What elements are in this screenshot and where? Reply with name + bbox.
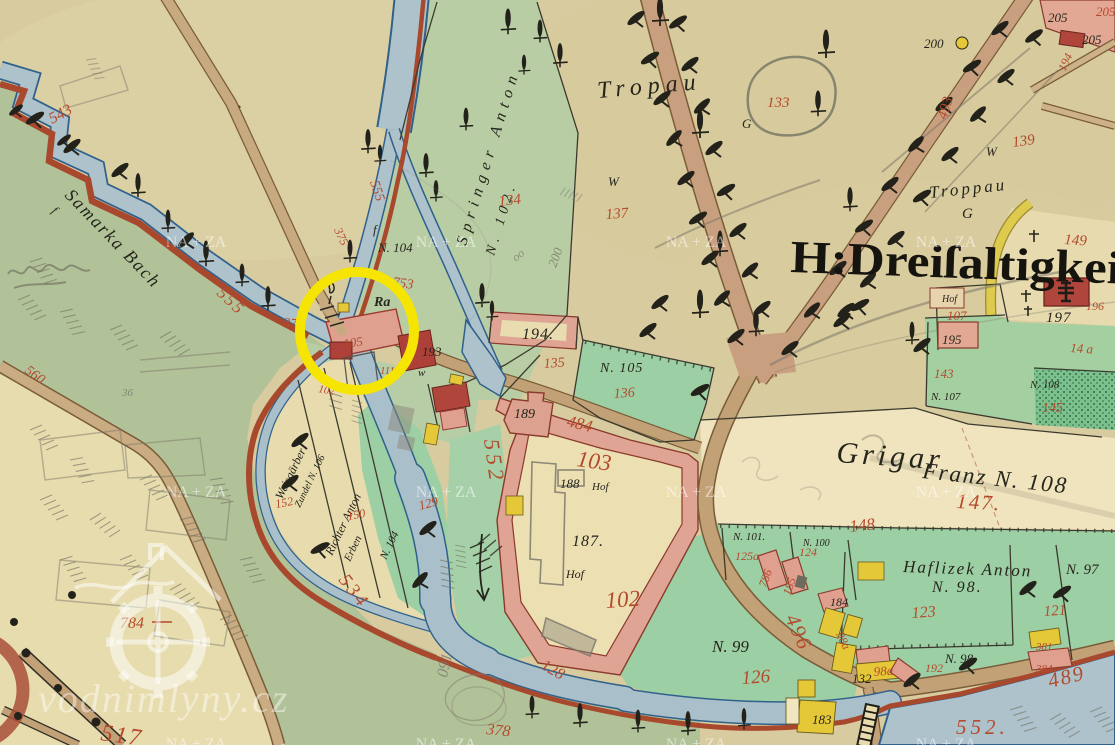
- svg-text:149: 149: [1064, 232, 1088, 250]
- svg-text:NA + ZA: NA + ZA: [916, 234, 977, 251]
- svg-text:183: 183: [812, 712, 832, 727]
- svg-text:NA + ZA: NA + ZA: [166, 484, 227, 501]
- svg-text:N. 108: N. 108: [1029, 379, 1060, 391]
- svg-text:w: w: [418, 367, 426, 379]
- svg-text:vodnimlyny.cz: vodnimlyny.cz: [38, 676, 290, 721]
- svg-text:NA + ZA: NA + ZA: [666, 484, 727, 501]
- svg-text:189: 189: [514, 407, 535, 422]
- svg-text:124: 124: [799, 545, 817, 559]
- svg-text:N. 107: N. 107: [930, 391, 961, 403]
- svg-text:102: 102: [605, 586, 641, 613]
- svg-text:143: 143: [934, 366, 954, 381]
- svg-text:139: 139: [1011, 132, 1036, 151]
- svg-text:378: 378: [485, 721, 512, 741]
- svg-text:NA + ZA: NA + ZA: [916, 484, 977, 501]
- svg-text:N. 104: N. 104: [377, 240, 413, 255]
- svg-text:NA + ZA: NA + ZA: [916, 736, 977, 745]
- svg-text:Ra: Ra: [373, 295, 390, 310]
- svg-text:N. 101.: N. 101.: [732, 531, 765, 543]
- svg-text:Hof: Hof: [941, 294, 958, 305]
- svg-text:126: 126: [741, 666, 771, 689]
- svg-text:98a: 98a: [873, 663, 894, 679]
- svg-text:192: 192: [925, 661, 943, 675]
- svg-text:14 a: 14 a: [1070, 340, 1094, 357]
- svg-text:381: 381: [1035, 641, 1053, 653]
- svg-text:187.: 187.: [572, 533, 604, 550]
- svg-text:148: 148: [848, 514, 876, 536]
- svg-text:36: 36: [121, 387, 134, 399]
- svg-text:Hof: Hof: [565, 567, 586, 581]
- svg-text:N. 97: N. 97: [1065, 562, 1100, 578]
- svg-text:135: 135: [543, 356, 565, 372]
- svg-text:N. 99: N. 99: [711, 637, 749, 656]
- svg-text:134: 134: [498, 192, 523, 210]
- svg-text:NA + ZA: NA + ZA: [416, 736, 477, 745]
- svg-text:G: G: [742, 116, 752, 131]
- svg-text:196: 196: [1086, 299, 1104, 313]
- svg-text:103: 103: [575, 446, 613, 476]
- svg-text:197: 197: [1046, 310, 1072, 326]
- svg-text:384: 384: [1035, 663, 1053, 675]
- svg-text:NA + ZA: NA + ZA: [416, 234, 477, 251]
- svg-text:132: 132: [852, 671, 872, 686]
- svg-text:137: 137: [605, 205, 630, 223]
- svg-text:205: 205: [1048, 10, 1068, 25]
- svg-text:121: 121: [1043, 602, 1067, 620]
- svg-text:184: 184: [830, 595, 848, 609]
- svg-text:105: 105: [342, 333, 364, 351]
- svg-text:N. 98.: N. 98.: [931, 579, 983, 596]
- svg-text:107: 107: [947, 308, 967, 323]
- svg-text:W: W: [608, 174, 620, 189]
- svg-text:NA + ZA: NA + ZA: [416, 484, 477, 501]
- svg-text:125a: 125a: [735, 549, 759, 563]
- svg-text:145: 145: [1042, 401, 1063, 416]
- svg-text:Hof: Hof: [591, 481, 610, 493]
- svg-text:123: 123: [911, 603, 936, 622]
- svg-text:N. 98: N. 98: [944, 651, 974, 666]
- svg-text:133: 133: [767, 95, 790, 111]
- svg-text:NA + ZA: NA + ZA: [666, 234, 727, 251]
- svg-text:W: W: [986, 144, 998, 159]
- svg-text:136: 136: [613, 386, 635, 402]
- svg-text:205: 205: [1082, 32, 1102, 47]
- svg-text:195: 195: [942, 332, 962, 347]
- svg-text:188: 188: [560, 476, 580, 491]
- svg-text:G: G: [962, 206, 973, 222]
- svg-text:N. 105: N. 105: [599, 361, 643, 376]
- svg-text:NA + ZA: NA + ZA: [166, 736, 227, 745]
- svg-text:193: 193: [422, 344, 442, 359]
- svg-text:NA + ZA: NA + ZA: [666, 736, 727, 745]
- svg-text:NA + ZA: NA + ZA: [166, 234, 227, 251]
- svg-text:200: 200: [924, 36, 944, 51]
- svg-text:205: 205: [1096, 4, 1115, 19]
- svg-text:194.: 194.: [522, 326, 554, 343]
